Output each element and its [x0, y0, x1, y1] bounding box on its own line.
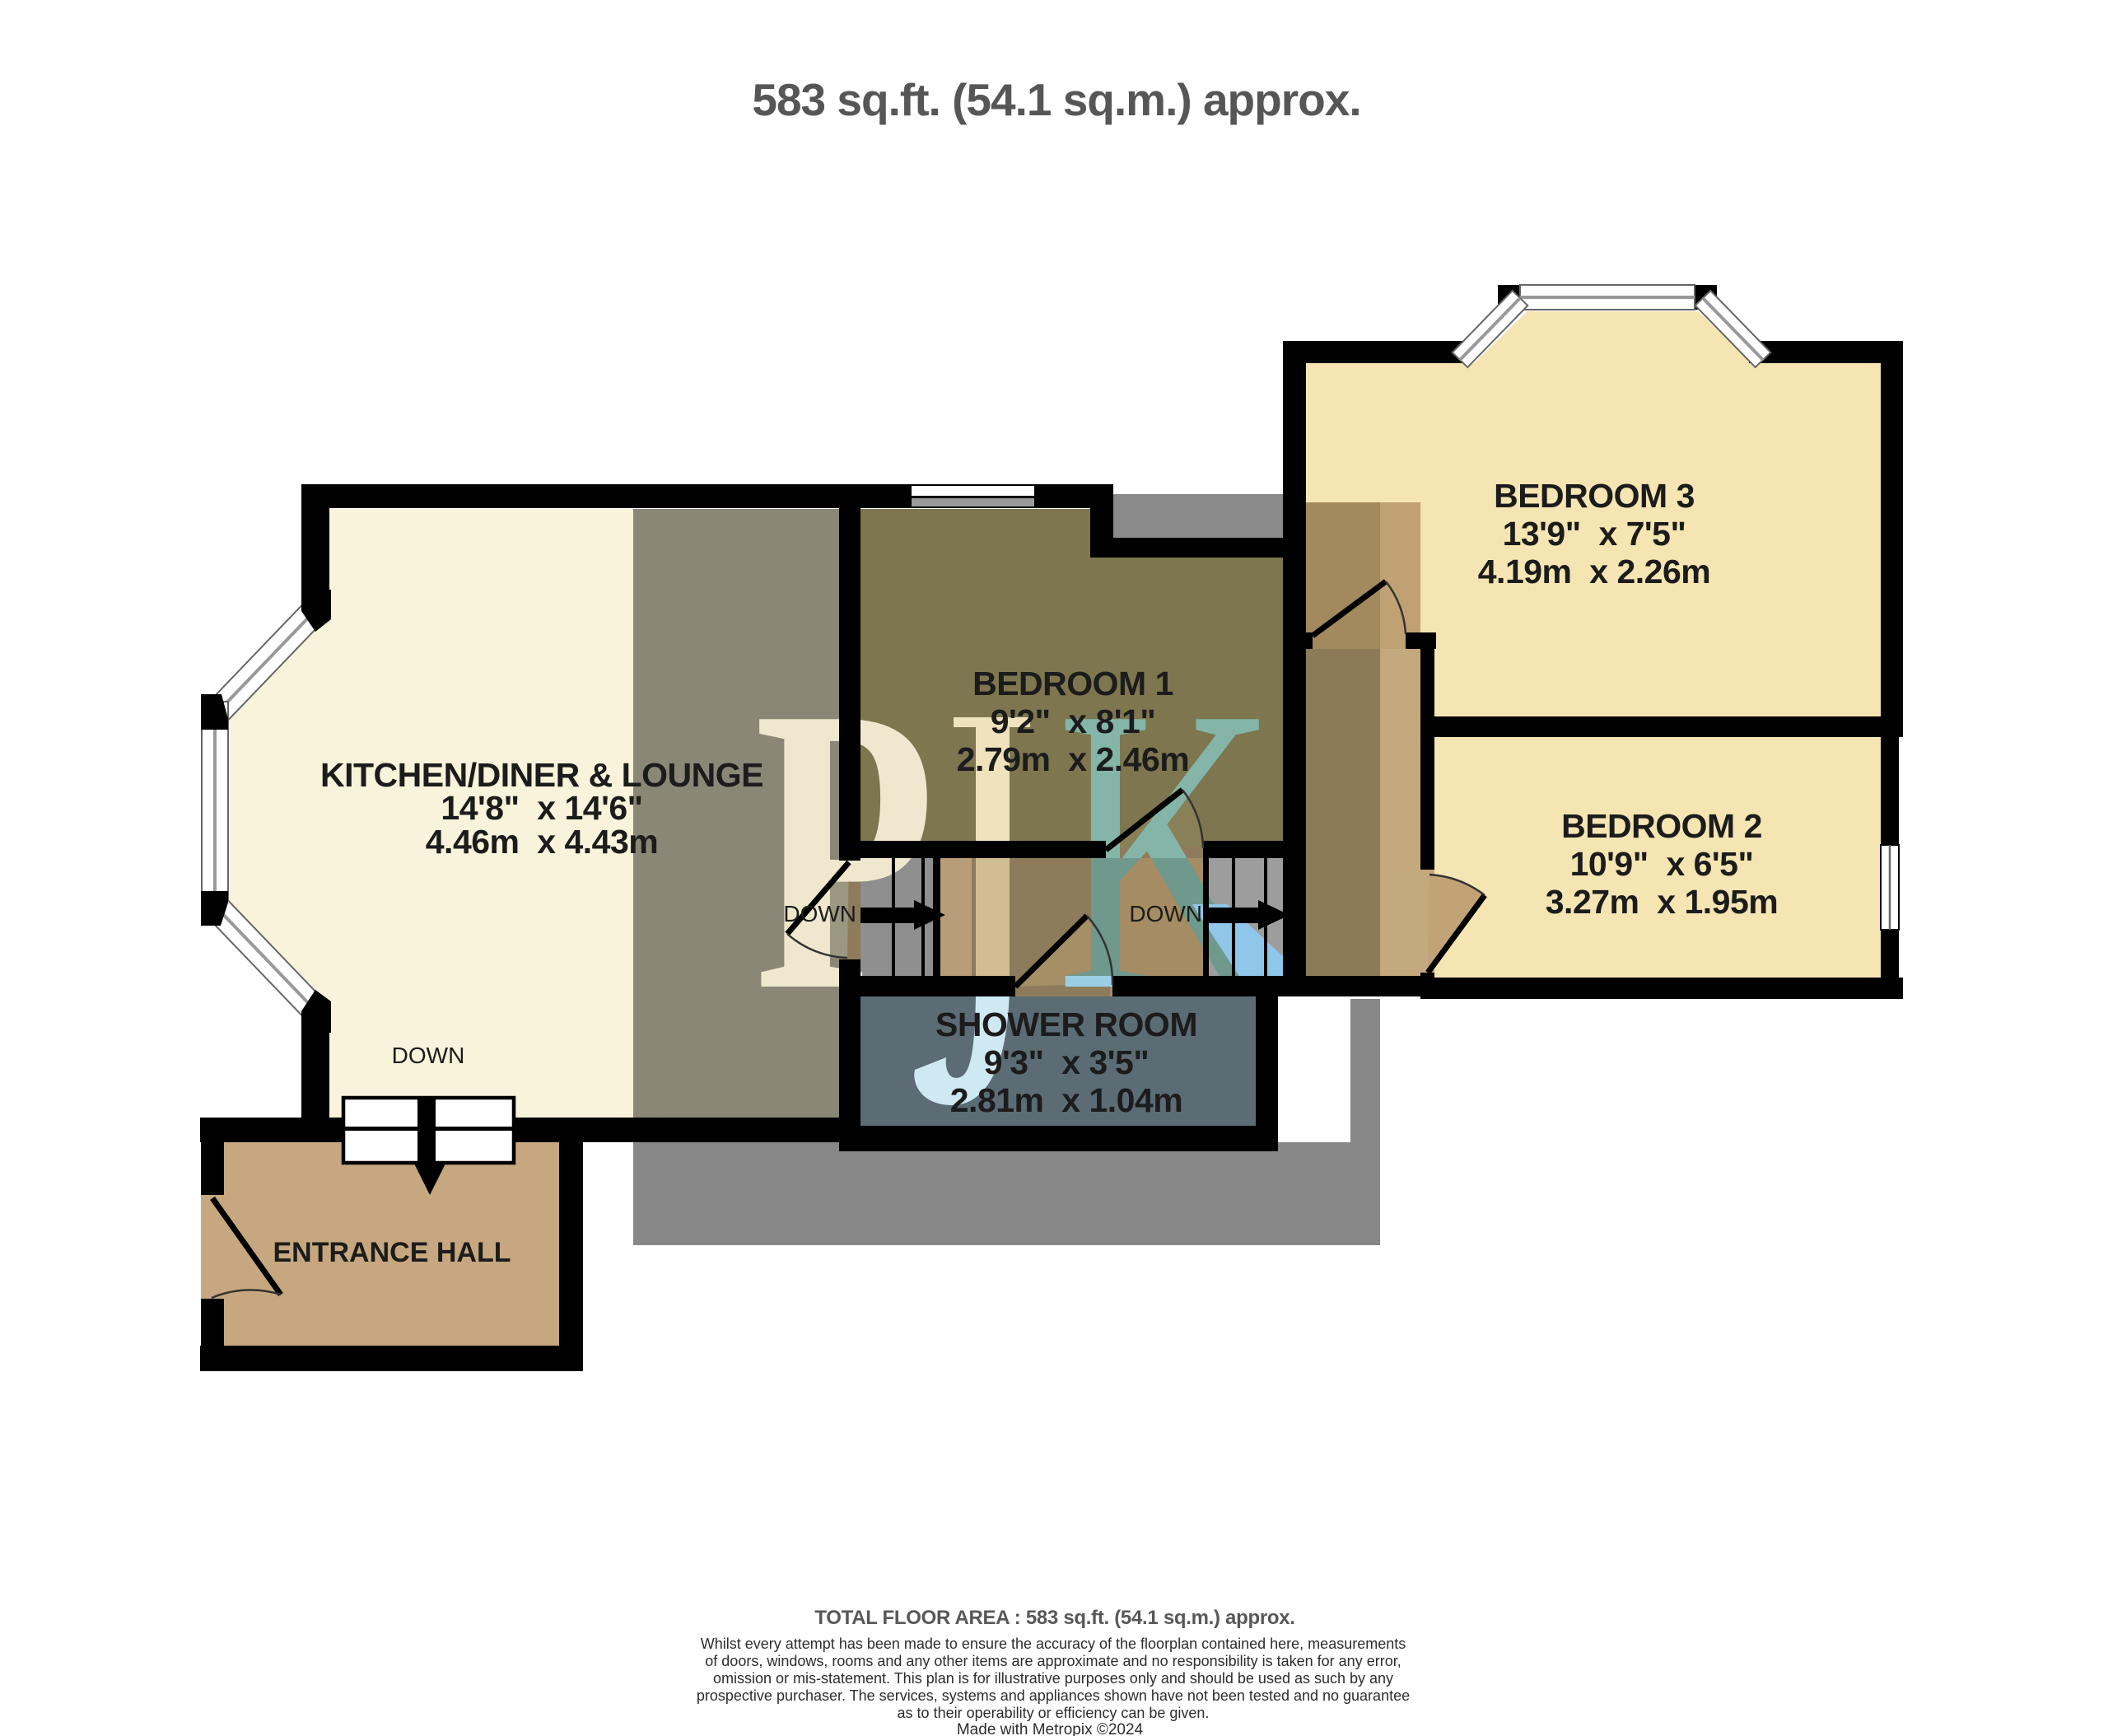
svg-text:BEDROOM 3: BEDROOM 3	[1494, 477, 1695, 515]
svg-text:9'3" x 3'5": 9'3" x 3'5"	[984, 1043, 1150, 1081]
svg-text:prospective purchaser. The ser: prospective purchaser. The services, sys…	[697, 1687, 1410, 1704]
svg-text:2.79m x 2.46m: 2.79m x 2.46m	[957, 740, 1189, 778]
svg-text:2.81m x 1.04m: 2.81m x 1.04m	[950, 1081, 1182, 1119]
svg-text:583 sq.ft. (54.1 sq.m.) approx: 583 sq.ft. (54.1 sq.m.) approx.	[752, 74, 1360, 125]
svg-text:of doors, windows, rooms and a: of doors, windows, rooms and any other i…	[705, 1653, 1401, 1669]
svg-text:10'9" x 6'5": 10'9" x 6'5"	[1570, 845, 1754, 883]
svg-text:BEDROOM 2: BEDROOM 2	[1561, 807, 1762, 845]
svg-text:4.46m x 4.43m: 4.46m x 4.43m	[426, 823, 658, 861]
svg-text:13'9" x 7'5": 13'9" x 7'5"	[1503, 515, 1686, 553]
svg-text:DOWN: DOWN	[392, 1043, 465, 1068]
svg-text:DOWN: DOWN	[1129, 901, 1202, 926]
svg-text:as to their operability or eff: as to their operability or efficiency ca…	[898, 1705, 1210, 1721]
svg-text:BEDROOM 1: BEDROOM 1	[972, 665, 1173, 702]
svg-text:Made with Metropix ©2024: Made with Metropix ©2024	[957, 1721, 1144, 1736]
svg-text:SHOWER ROOM: SHOWER ROOM	[935, 1006, 1197, 1043]
svg-text:TOTAL FLOOR AREA : 583 sq.ft.: TOTAL FLOOR AREA : 583 sq.ft. (54.1 sq.m…	[814, 1607, 1294, 1629]
svg-text:omission or mis-statement. Thi: omission or mis-statement. This plan is …	[713, 1670, 1393, 1687]
svg-text:9'2" x 8'1": 9'2" x 8'1"	[991, 702, 1156, 740]
svg-text:DOWN: DOWN	[783, 901, 856, 926]
svg-text:3.27m x 1.95m: 3.27m x 1.95m	[1546, 883, 1778, 921]
svg-text:Whilst every attempt has been: Whilst every attempt has been made to en…	[701, 1636, 1406, 1652]
svg-text:14'8" x 14'6": 14'8" x 14'6"	[441, 789, 642, 827]
svg-text:4.19m x 2.26m: 4.19m x 2.26m	[1478, 553, 1710, 590]
svg-text:ENTRANCE HALL: ENTRANCE HALL	[273, 1237, 511, 1268]
